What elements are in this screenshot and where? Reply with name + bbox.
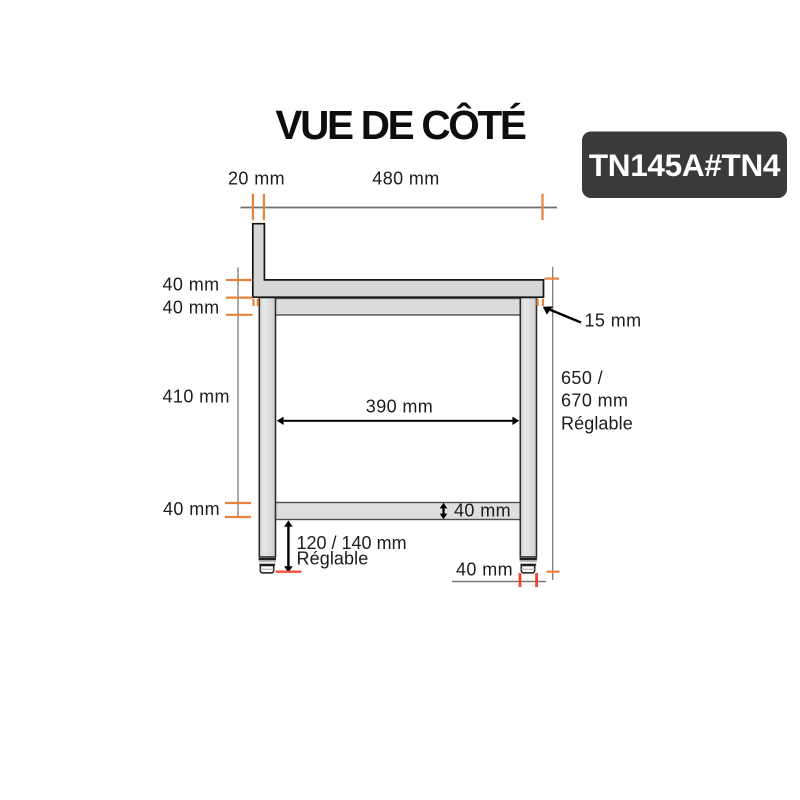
svg-text:670 mm: 670 mm — [561, 391, 628, 411]
svg-text:15 mm: 15 mm — [585, 311, 642, 331]
svg-text:20 mm: 20 mm — [228, 169, 285, 189]
svg-text:40 mm: 40 mm — [456, 560, 513, 580]
svg-text:650 /: 650 / — [561, 368, 603, 388]
svg-text:40 mm: 40 mm — [163, 275, 220, 295]
svg-text:VUE DE CÔTÉ: VUE DE CÔTÉ — [275, 102, 526, 148]
svg-text:40 mm: 40 mm — [163, 298, 220, 318]
svg-text:Réglable: Réglable — [561, 414, 633, 434]
svg-text:480 mm: 480 mm — [372, 169, 439, 189]
svg-text:410 mm: 410 mm — [163, 386, 230, 406]
svg-text:40 mm: 40 mm — [454, 500, 511, 520]
svg-text:Réglable: Réglable — [297, 548, 369, 568]
svg-text:390 mm: 390 mm — [366, 397, 433, 417]
svg-text:40 mm: 40 mm — [163, 499, 220, 519]
svg-text:TN145A#TN4: TN145A#TN4 — [589, 147, 781, 183]
